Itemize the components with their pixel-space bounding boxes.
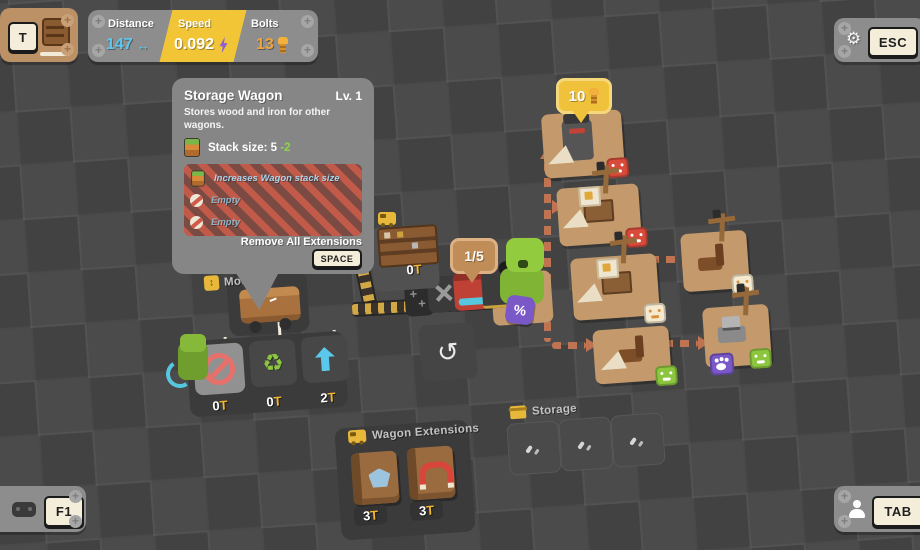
iron-ore-icon <box>368 467 391 487</box>
storage-crate-icon <box>191 170 205 186</box>
extension-book-magnet[interactable] <box>406 445 456 500</box>
stack-size-label: Stack size: 5 <box>208 142 277 154</box>
train-hotkey[interactable]: T <box>8 22 38 52</box>
chair-sprite <box>697 243 725 271</box>
storage-title: Storage <box>532 402 578 417</box>
upgrade-arrow-icon <box>314 346 336 371</box>
extension-slot-row[interactable]: Increases Wagon stack size <box>190 167 356 189</box>
stack-size-row: Stack size: 5 -2 <box>184 138 362 157</box>
percent-glyph: % <box>513 301 528 319</box>
cargo-cube-sprite <box>596 258 619 279</box>
percent-dice-icon[interactable]: % <box>504 294 536 326</box>
storage-slot[interactable] <box>506 420 562 476</box>
storage-box-icon <box>510 405 527 419</box>
game-screen: 10 <box>0 0 920 550</box>
modify-icon: ↕ <box>204 275 220 291</box>
speed-value: 0.092 <box>174 36 229 54</box>
esc-key[interactable]: ESC <box>868 27 918 57</box>
tooltip-description: Stores wood and iron for other wagons. <box>184 106 362 132</box>
capacity-bubble: 1/5 <box>450 238 498 274</box>
train-tab-panel[interactable]: T <box>0 8 78 62</box>
requirement-badge <box>655 365 678 386</box>
option-cost-upgrade: 2T <box>306 388 351 406</box>
requirement-badge <box>643 303 666 324</box>
bolt-icon <box>589 88 599 105</box>
cost-unit: T <box>273 393 282 409</box>
speed-label: Speed <box>178 18 211 30</box>
screw-icon <box>92 44 105 57</box>
controls-panel[interactable]: F1 <box>0 486 86 532</box>
rotate-ccw-icon: ↺ <box>436 336 460 368</box>
space-key[interactable]: SPACE <box>312 249 362 268</box>
screw-icon <box>838 515 851 528</box>
screw-icon <box>838 490 851 503</box>
empty-slot-icon <box>190 194 203 207</box>
distance-label: Distance <box>108 18 154 30</box>
requirement-badge <box>749 348 772 369</box>
stack-size-modifier: -2 <box>280 142 290 154</box>
cost-bubble: 10 <box>556 78 612 114</box>
screw-icon <box>61 43 74 56</box>
screw-icon <box>69 515 82 528</box>
build-card-chair-2[interactable] <box>592 325 672 384</box>
cost-unit: T <box>327 389 336 405</box>
speed-number: 0.092 <box>174 36 214 54</box>
modify-option-recycle[interactable]: ♻ <box>248 338 297 387</box>
recycle-icon: ♻ <box>261 348 284 378</box>
screw-icon <box>301 15 314 28</box>
screw-icon <box>838 22 851 35</box>
tab-key[interactable]: TAB <box>872 496 920 527</box>
esc-key-label: ESC <box>879 35 907 50</box>
cost-unit: T <box>370 507 379 523</box>
grinder-sprite <box>717 315 747 343</box>
tab-key-label: TAB <box>884 504 911 519</box>
bolts-label: Bolts <box>251 18 279 30</box>
option-cost-recycle: 0T <box>252 392 297 410</box>
rotate-cell[interactable]: ↺ <box>418 322 478 382</box>
character-panel[interactable]: TAB <box>834 486 920 532</box>
extension-slot-row[interactable]: Empty <box>190 211 356 233</box>
storage-crate-icon <box>184 138 200 157</box>
bolts-number: 13 <box>256 36 274 54</box>
distance-value: 147 ↔ <box>106 36 150 54</box>
paw-badge <box>709 352 734 376</box>
remove-all-extensions-label: Remove All Extensions <box>241 236 362 248</box>
cost-unit: T <box>426 502 435 518</box>
cargo-cube-sprite <box>578 186 601 207</box>
screw-icon <box>838 45 851 58</box>
cost-bubble-value: 10 <box>569 88 586 105</box>
extension-cost: 3T <box>409 500 443 521</box>
empty-slot-icon <box>190 216 203 229</box>
wagon-icon <box>348 429 367 443</box>
build-card-crate-2[interactable] <box>570 253 660 321</box>
extension-book-ore[interactable] <box>350 450 400 505</box>
train-hotkey-label: T <box>19 30 27 45</box>
screw-icon <box>301 44 314 57</box>
person-icon <box>848 500 866 519</box>
build-card-grinder[interactable] <box>702 304 772 368</box>
water-tank-stripe <box>459 297 485 306</box>
capacity-value: 1/5 <box>464 248 483 264</box>
screw-icon <box>69 490 82 503</box>
tooltip-title: Storage Wagon <box>184 88 283 103</box>
bolt-icon <box>278 37 288 54</box>
settings-panel[interactable]: ⚙ ESC <box>834 18 920 62</box>
cost-unit: T <box>413 261 422 277</box>
extension-slot-row[interactable]: Empty <box>190 189 356 211</box>
storage-wagon-tooltip: Storage Wagon Lv. 1 Stores wood and iron… <box>172 78 374 274</box>
stats-panel: Distance 147 ↔ Speed 0.092 Bolts 13 <box>88 10 318 62</box>
wagon-marker-icon <box>378 212 396 225</box>
extension-cost: 3T <box>353 505 387 526</box>
extension-slot-label: Empty <box>211 195 240 206</box>
wood-pile-sprite <box>576 283 603 303</box>
option-cost-remove: 0T <box>198 396 243 414</box>
storage-slot[interactable] <box>558 416 614 472</box>
route-dashes <box>552 342 586 349</box>
storage-slot[interactable] <box>610 412 666 468</box>
modify-option-upgrade[interactable] <box>300 334 349 383</box>
left-right-arrows-icon: ↔ <box>137 38 150 53</box>
screw-icon <box>92 15 105 28</box>
bolts-value: 13 <box>256 36 288 54</box>
distance-number: 147 <box>106 36 133 54</box>
extension-slot-label: Increases Wagon stack size <box>214 173 340 184</box>
cost-unit: T <box>219 397 228 413</box>
magnet-icon <box>418 460 454 485</box>
tooltip-level: Lv. 1 <box>336 89 362 103</box>
shelf-cost: 0T <box>392 260 437 278</box>
extension-slots-list: Increases Wagon stack size Empty Empty <box>184 164 362 236</box>
extension-slot-label: Empty <box>211 217 240 228</box>
axe-stand-sprite <box>707 211 737 243</box>
screw-icon <box>61 14 74 27</box>
gamepad-icon <box>12 502 36 517</box>
axe-stand-sprite <box>731 284 761 316</box>
lightning-icon <box>218 37 229 53</box>
space-key-label: SPACE <box>321 254 354 264</box>
